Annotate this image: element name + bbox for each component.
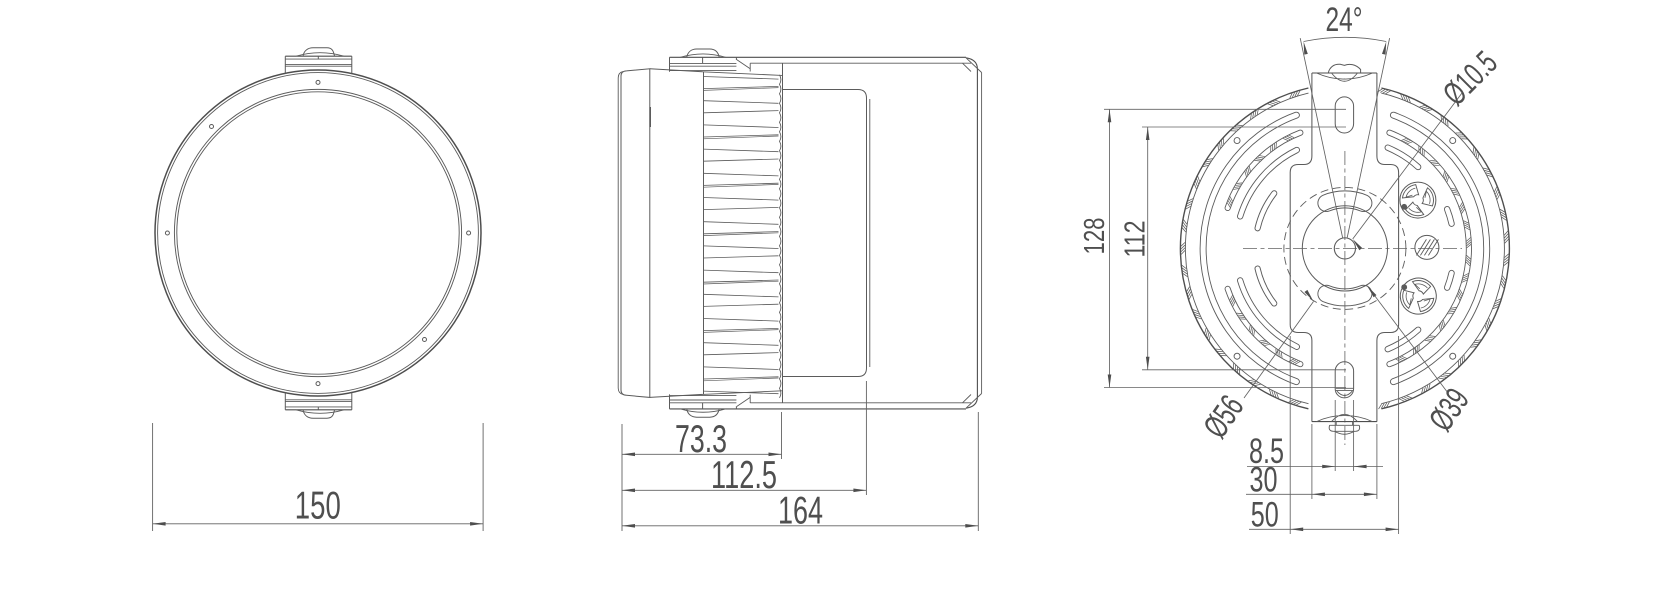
svg-text:164: 164 (778, 490, 823, 533)
svg-text:50: 50 (1251, 495, 1279, 534)
svg-text:24°: 24° (1326, 1, 1363, 39)
svg-text:112: 112 (1120, 221, 1152, 258)
svg-text:30: 30 (1250, 460, 1278, 499)
svg-text:128: 128 (1079, 218, 1111, 255)
svg-text:112.5: 112.5 (711, 454, 777, 497)
svg-text:150: 150 (295, 485, 341, 528)
